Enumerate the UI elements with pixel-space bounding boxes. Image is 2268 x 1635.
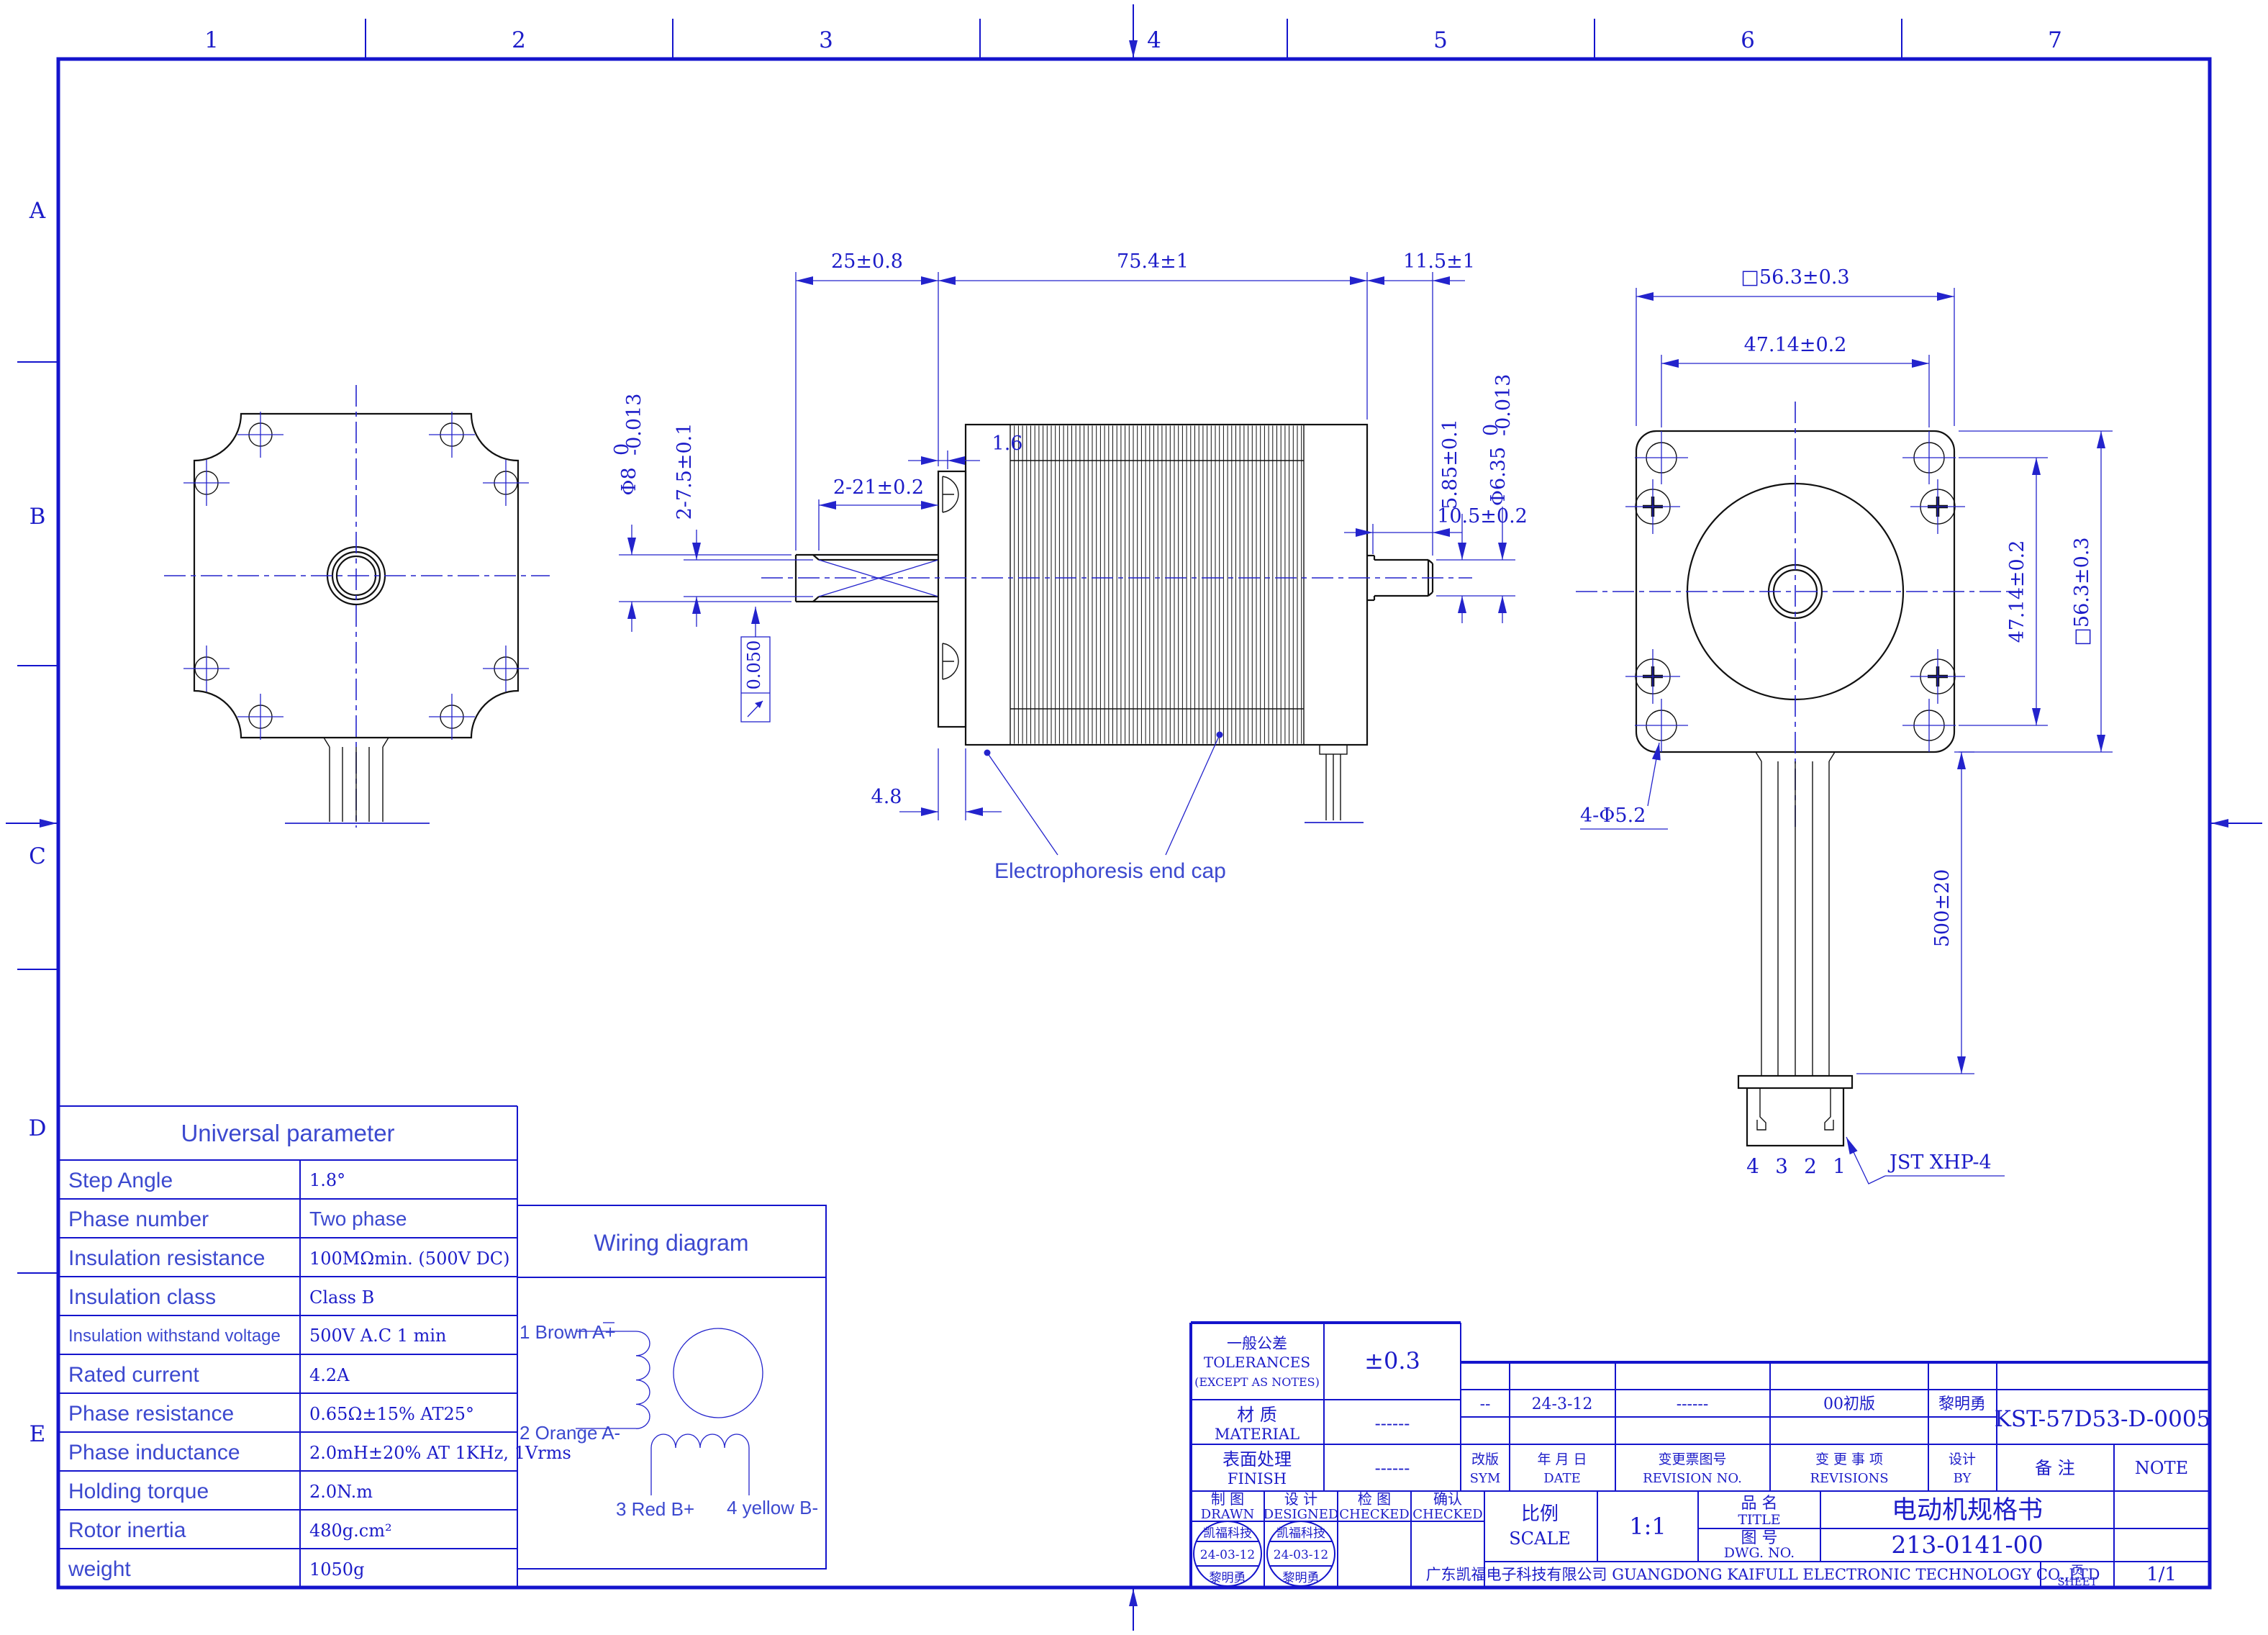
drawn-en: DRAWN: [1201, 1507, 1255, 1522]
rev-by-cn: 设计: [1949, 1451, 1976, 1467]
connector-callout: JST XHP-4: [1846, 1137, 2005, 1184]
sheet-en: SHEET: [2057, 1575, 2097, 1588]
param-values: 1.8° Two phase 100MΩmin. (500V DC) Class…: [309, 1170, 571, 1580]
rev-no-en: REVISION NO.: [1643, 1471, 1742, 1486]
param-label-step-angle: Step Angle: [68, 1169, 173, 1192]
dim-mount-holes: 4-Φ5.2: [1580, 805, 1646, 827]
param-label-weight: weight: [68, 1557, 131, 1581]
checked-en: CHECKED: [1339, 1507, 1409, 1522]
sheet-center-marks: [6, 4, 2262, 1631]
rear-dim-lines: [1636, 288, 2113, 1074]
dim-rear-diameter: Φ6.35 0 -0.013: [1480, 374, 1515, 507]
dim-flat-length: 2-21±0.2: [833, 476, 924, 499]
rev-items-cn: 变 更 事 项: [1815, 1451, 1883, 1467]
zone-col-6: 6: [1741, 27, 1755, 53]
rev-row-item: 00初版: [1823, 1395, 1875, 1413]
title-cn: 品 名: [1741, 1495, 1778, 1513]
note-cn: 备 注: [2035, 1458, 2075, 1478]
dwg-value: 213-0141-00: [1891, 1531, 2043, 1559]
zone-row-B: B: [30, 504, 46, 530]
company-name: 广东凯福电子科技有限公司 GUANGDONG KAIFULL ELECTRONI…: [1426, 1566, 2100, 1583]
title-block: 一般公差 TOLERANCES (EXCEPT AS NOTES) ±0.3 材…: [1191, 1323, 2210, 1588]
lead-2-label: 2 Orange A-: [520, 1422, 620, 1444]
param-value-phase-number: Two phase: [309, 1208, 407, 1230]
runout-value: 0.050: [744, 640, 764, 690]
parameter-table: Universal parameter Step Angle Phase num…: [58, 1106, 571, 1588]
zone-row-A: A: [29, 198, 46, 224]
rev-row-date: 24-3-12: [1532, 1395, 1593, 1413]
runout-tolerance-frame: 0.050: [741, 637, 770, 722]
rev-row-no: ------: [1677, 1395, 1709, 1413]
finish-value: ------: [1375, 1458, 1410, 1478]
dim-holes-top: 47.14±0.2: [1744, 334, 1847, 356]
rear-view: 4 3 2 1 JST XHP-4 4-Φ5.2: [1576, 266, 2113, 1184]
material-en: MATERIAL: [1215, 1426, 1299, 1443]
side-lamination-hatch: [1010, 426, 1302, 744]
sheet-frame: 1 2 3 4 5 6 7 A B C D E: [6, 4, 2262, 1631]
rotor-circle: [673, 1328, 763, 1418]
param-label-rated-current: Rated current: [68, 1363, 199, 1387]
engineering-drawing-sheet: 1 2 3 4 5 6 7 A B C D E: [0, 0, 2268, 1635]
param-value-insulation-class: Class B: [309, 1287, 374, 1308]
param-label-phase-number: Phase number: [68, 1208, 209, 1231]
side-view-dimensions: 0.050 25±0.8 75.4±1 11.5±1 1.6 10.5±0.2 …: [611, 250, 1528, 883]
endcap-callout: Electrophoresis end cap: [984, 732, 1226, 884]
dim-front-shaft: 25±0.8: [831, 250, 903, 273]
rev-date-en: DATE: [1543, 1471, 1581, 1486]
svg-text:Φ6.35: Φ6.35: [1487, 447, 1510, 506]
zone-col-2: 2: [512, 27, 526, 53]
param-labels: Step Angle Phase number Insulation resis…: [68, 1169, 281, 1581]
param-table-title: Universal parameter: [181, 1120, 394, 1146]
param-label-holding-torque: Holding torque: [68, 1480, 209, 1503]
param-value-rated-current: 4.2A: [309, 1365, 350, 1385]
tolerances-note: (EXCEPT AS NOTES): [1194, 1375, 1320, 1389]
checked-cn: 检 图: [1358, 1490, 1391, 1508]
param-value-withstand-voltage: 500V A.C 1 min: [309, 1326, 447, 1346]
tolerances-en: TOLERANCES: [1204, 1354, 1310, 1371]
zone-row-C: C: [29, 843, 46, 869]
param-value-phase-resistance: 0.65Ω±15% AT25°: [309, 1404, 474, 1424]
pin-2: 2: [1804, 1154, 1817, 1178]
dim-rear-flat: 5.85±0.1: [1439, 419, 1461, 509]
title-value: 电动机规格书: [1892, 1496, 2043, 1525]
material-value: ------: [1375, 1413, 1410, 1434]
connector-label: JST XHP-4: [1887, 1151, 1992, 1174]
param-label-insulation-resistance: Insulation resistance: [68, 1246, 266, 1270]
pin-1: 1: [1833, 1154, 1846, 1178]
pin-4: 4: [1746, 1154, 1759, 1178]
svg-text:-0.013: -0.013: [1492, 374, 1515, 436]
zone-col-3: 3: [819, 27, 833, 53]
tolerances-value: ±0.3: [1364, 1347, 1420, 1374]
rear-connector: [1738, 1076, 1852, 1146]
runout-symbol-icon: [748, 701, 763, 717]
lead-1-label: 1 Brown A+: [520, 1321, 616, 1343]
front-view-wires: [324, 738, 389, 822]
dim-plate-thickness: 4.8: [871, 786, 902, 808]
svg-text:Φ8: Φ8: [618, 467, 640, 495]
sheet-value: 1/1: [2146, 1564, 2177, 1585]
rev-sym-cn: 改版: [1471, 1451, 1499, 1467]
dim-body-length: 75.4±1: [1117, 250, 1189, 273]
svg-text:凯福科技: 凯福科技: [1276, 1526, 1325, 1541]
part-number: KST-57D53-D-0005: [1995, 1406, 2211, 1432]
param-label-withstand-voltage: Insulation withstand voltage: [68, 1326, 281, 1346]
wiring-title: Wiring diagram: [594, 1230, 748, 1256]
rev-by-en: BY: [1954, 1471, 1972, 1486]
side-view-wires: [1320, 745, 1347, 820]
dim-holes-right: 47.14±0.2: [2006, 540, 2028, 643]
zone-col-7: 7: [2048, 27, 2062, 53]
phase-a-coil: [576, 1331, 650, 1428]
wiring-diagram: Wiring diagram 1 Brown A+ 2 Orange A- 3 …: [517, 1205, 826, 1569]
svg-text:-0.013: -0.013: [623, 394, 645, 456]
param-value-weight: 1050g: [309, 1559, 364, 1580]
scale-value: 1:1: [1629, 1513, 1666, 1540]
drawn-stamp: 凯福科技 24-03-12 黎明勇: [1194, 1521, 1261, 1586]
drawn-cn: 制 图: [1211, 1490, 1244, 1508]
dim-square-top: □56.3±0.3: [1741, 266, 1849, 289]
tolerances-cn: 一般公差: [1227, 1335, 1287, 1352]
front-view: [164, 385, 550, 828]
confirmed-en: CHECKED: [1412, 1507, 1482, 1522]
param-value-step-angle: 1.8°: [309, 1170, 345, 1190]
material-cn: 材 质: [1237, 1405, 1277, 1425]
finish-cn: 表面处理: [1223, 1449, 1292, 1469]
designed-stamp: 凯福科技 24-03-12 黎明勇: [1267, 1521, 1335, 1586]
param-label-phase-inductance: Phase inductance: [68, 1441, 240, 1464]
svg-text:24-03-12: 24-03-12: [1274, 1548, 1328, 1562]
zone-col-5: 5: [1433, 27, 1448, 53]
pin-3: 3: [1775, 1154, 1788, 1178]
lead-3-label: 3 Red B+: [616, 1498, 694, 1520]
confirmed-cn: 确认: [1433, 1490, 1462, 1508]
rev-items-en: REVISIONS: [1810, 1471, 1888, 1486]
zone-col-1: 1: [204, 27, 219, 53]
param-value-holding-torque: 2.0N.m: [309, 1482, 373, 1502]
rear-cable: [1756, 752, 1835, 1076]
dim-flat-width: 2-7.5±0.1: [673, 423, 696, 520]
scale-cn: 比例: [1521, 1503, 1559, 1525]
svg-text:黎明勇: 黎明勇: [1210, 1571, 1246, 1585]
finish-en: FINISH: [1228, 1470, 1287, 1487]
endcap-label: Electrophoresis end cap: [994, 859, 1226, 883]
dwg-en: DWG. NO.: [1724, 1545, 1795, 1561]
param-value-phase-inductance: 2.0mH±20% AT 1KHz, 1Vrms: [309, 1443, 571, 1463]
connector-pin-labels: 4 3 2 1: [1746, 1154, 1846, 1178]
svg-text:24-03-12: 24-03-12: [1200, 1548, 1255, 1562]
svg-text:黎明勇: 黎明勇: [1283, 1571, 1320, 1585]
phase-b-coil: [651, 1434, 749, 1495]
designed-en: DESIGNED: [1264, 1507, 1339, 1522]
param-label-phase-resistance: Phase resistance: [68, 1402, 234, 1426]
dim-square-right: □56.3±0.3: [2071, 537, 2093, 646]
rev-sym-en: SYM: [1470, 1471, 1501, 1486]
scale-en: SCALE: [1509, 1528, 1571, 1549]
dim-boss: 1.6: [992, 432, 1023, 455]
param-value-rotor-inertia: 480g.cm²: [309, 1521, 392, 1541]
rev-row-by: 黎明勇: [1938, 1395, 1986, 1413]
svg-text:凯福科技: 凯福科技: [1203, 1526, 1252, 1541]
param-label-insulation-class: Insulation class: [68, 1285, 216, 1309]
zone-row-D: D: [29, 1115, 47, 1141]
rev-no-cn: 变更票图号: [1658, 1451, 1726, 1467]
dim-front-diameter: Φ8 0 -0.013: [611, 394, 645, 496]
param-value-insulation-resistance: 100MΩmin. (500V DC): [309, 1249, 510, 1269]
dim-rear-shaft: 11.5±1: [1403, 250, 1475, 273]
lead-4-label: 4 yellow B-: [727, 1497, 818, 1518]
rev-row-sym: --: [1480, 1395, 1491, 1413]
zone-col-4: 4: [1147, 27, 1161, 53]
title-en: TITLE: [1738, 1512, 1780, 1528]
zone-row-E: E: [30, 1421, 46, 1447]
dim-cable-length: 500±20: [1931, 869, 1954, 948]
param-label-rotor-inertia: Rotor inertia: [68, 1518, 186, 1542]
note-en: NOTE: [2135, 1458, 2188, 1478]
rev-date-cn: 年 月 日: [1537, 1451, 1587, 1467]
designed-cn: 设 计: [1284, 1490, 1317, 1508]
